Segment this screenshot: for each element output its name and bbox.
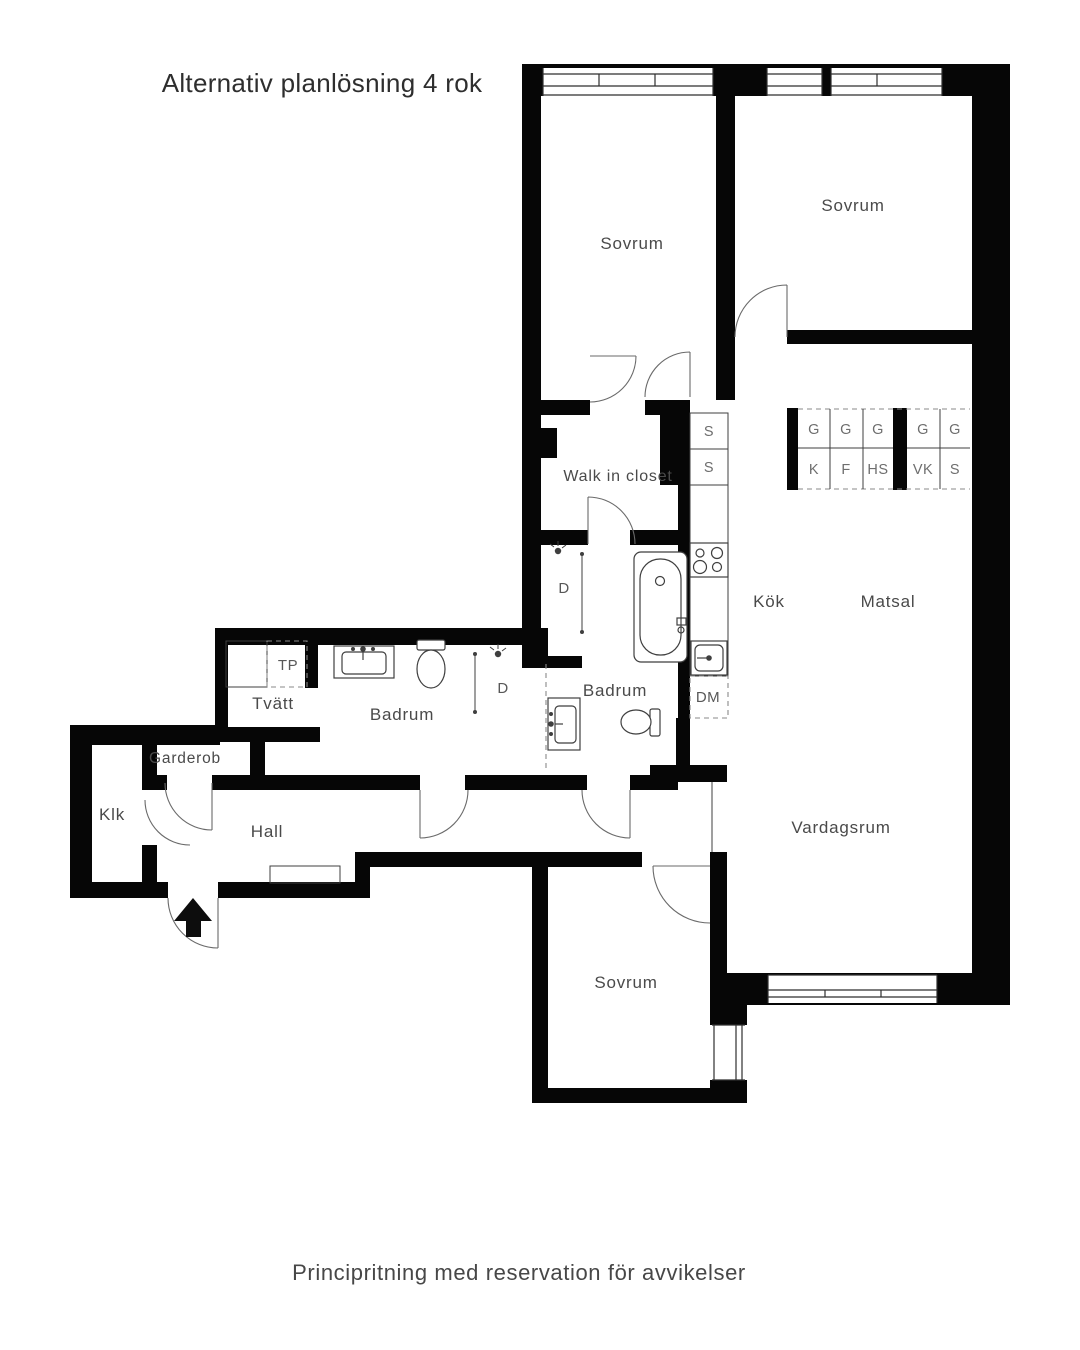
window xyxy=(767,68,822,96)
windows xyxy=(543,68,942,1080)
room-label-matsal: Matsal xyxy=(861,592,916,611)
cabinet-g-1: G xyxy=(808,422,820,438)
door-arc xyxy=(145,800,190,845)
shower-rail xyxy=(473,652,477,714)
room-label-sovrum-bottom: Sovrum xyxy=(594,973,657,992)
disclaimer-text: Principritning med reservation för avvik… xyxy=(292,1260,746,1285)
door-arc xyxy=(735,285,787,337)
shower-rail xyxy=(580,552,584,634)
window xyxy=(543,68,713,96)
doors xyxy=(145,285,787,948)
cabinet-hs: HS xyxy=(867,462,888,478)
door-arc xyxy=(420,790,468,838)
room-label-klk: Klk xyxy=(99,805,125,824)
room-label-walk-in-closet: Walk in closet xyxy=(563,468,672,485)
label-tall-cabinet-1: S xyxy=(704,424,714,440)
cabinet-vk: VK xyxy=(913,462,933,478)
cabinet-f: F xyxy=(841,462,850,478)
bathtub-icon xyxy=(634,552,687,662)
floorplan-page: Alternativ planlösning 4 rok Sovrum Sovr… xyxy=(0,0,1080,1350)
stove-icon xyxy=(690,543,728,577)
label-shower-left: D xyxy=(497,680,508,697)
room-label-hall: Hall xyxy=(251,822,284,841)
room-label-sovrum-tl: Sovrum xyxy=(600,234,663,253)
room-label-badrum-mid: Badrum xyxy=(583,681,647,700)
door-arc xyxy=(590,356,636,402)
cabinet-g-4: G xyxy=(917,422,929,438)
label-dishwasher: DM xyxy=(696,689,720,706)
page-title: Alternativ planlösning 4 rok xyxy=(162,68,483,98)
window xyxy=(768,975,937,1003)
bathroom-sink-icon xyxy=(548,698,580,750)
room-label-sovrum-tr: Sovrum xyxy=(821,196,884,215)
cabinet-g-5: G xyxy=(949,422,961,438)
cabinet-g-2: G xyxy=(840,422,852,438)
room-label-badrum-left: Badrum xyxy=(370,705,434,724)
door-arc xyxy=(588,497,635,544)
window xyxy=(712,1025,745,1080)
label-drying-cabinet: TP xyxy=(278,657,298,674)
label-tall-cabinet-2: S xyxy=(704,460,714,476)
bathroom-sink-icon xyxy=(334,646,394,678)
room-label-kok: Kök xyxy=(753,592,785,611)
door-arc xyxy=(653,866,710,923)
room-label-garderob: Garderob xyxy=(149,750,221,767)
shower-head-icon xyxy=(490,644,506,657)
washer-box xyxy=(226,641,267,687)
door-arc xyxy=(165,783,212,830)
label-shower-mid: D xyxy=(558,580,569,597)
cabinet-g-3: G xyxy=(872,422,884,438)
window xyxy=(831,68,942,96)
kitchen-sink-icon xyxy=(691,641,727,675)
cabinet-k: K xyxy=(809,462,819,478)
floor-plan-svg: Alternativ planlösning 4 rok Sovrum Sovr… xyxy=(0,0,1080,1350)
hall-cabinet xyxy=(270,866,340,883)
door-arc xyxy=(582,790,630,838)
toilet-icon xyxy=(621,709,660,736)
toilet-icon xyxy=(417,640,445,688)
room-label-vardagsrum: Vardagsrum xyxy=(791,818,890,837)
room-label-tvatt: Tvätt xyxy=(252,694,294,713)
entrance-arrow-icon xyxy=(174,898,212,937)
cabinet-s: S xyxy=(950,462,960,478)
door-arc xyxy=(645,352,690,397)
